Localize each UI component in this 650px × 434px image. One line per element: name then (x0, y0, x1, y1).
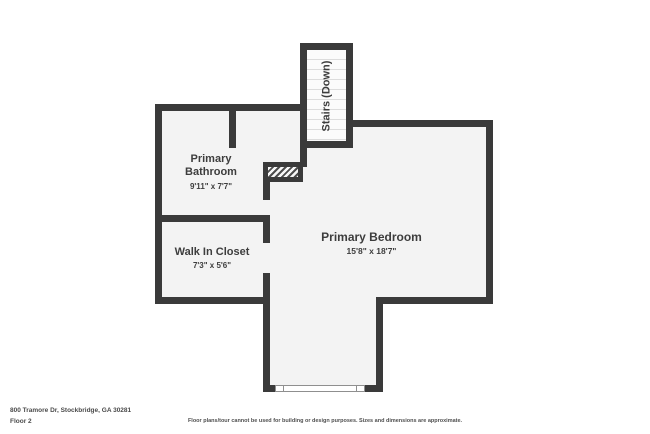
room-dimensions: 9'11" x 7'7" (171, 182, 251, 191)
wall-bedroom-step (376, 297, 383, 392)
wall-closet-right-lower (263, 273, 270, 392)
room-label-primary-bedroom: Primary Bedroom 15'8" x 18'7" (269, 230, 474, 256)
room-label-walk-in-closet: Walk In Closet 7'3" x 5'6" (152, 246, 272, 270)
wall-bathroom-stub (229, 111, 236, 148)
footer-address: 800 Tramore Dr, Stockbridge, GA 30281 (10, 407, 131, 414)
room-name: Walk In Closet (152, 246, 272, 259)
room-dimensions: 15'8" x 18'7" (269, 246, 474, 256)
wall-bathroom-closet-divider (155, 215, 270, 222)
wall-bedroom-top (346, 120, 493, 127)
room-name: Primary Bathroom (171, 153, 251, 179)
wall-closet-bottom (155, 297, 270, 304)
room-label-stairs-down: Stairs (Down) (307, 50, 346, 141)
wall-bathroom-top (155, 104, 307, 111)
room-fill-bedroom-lower (267, 290, 380, 392)
room-label-primary-bathroom: Primary Bathroom 9'11" x 7'7" (171, 153, 251, 191)
wall-stairs-right (346, 43, 353, 148)
wall-bedroom-bottom-right (376, 297, 493, 304)
room-name: Stairs (Down) (321, 60, 333, 131)
window-pane-divider (283, 386, 284, 391)
window-glyph (275, 385, 365, 392)
window-pane-divider (356, 386, 357, 391)
room-dimensions: 7'3" x 5'6" (152, 261, 272, 270)
footer-disclaimer: Floor plans/tour cannot be used for buil… (0, 418, 650, 424)
wall-stairs-bottom (300, 141, 353, 148)
room-name: Primary Bedroom (269, 230, 474, 244)
wall-bathroom-door-jamb (263, 182, 270, 200)
wall-outer-left (155, 104, 162, 304)
floor-plan-canvas: Primary Bathroom 9'11" x 7'7" Walk In Cl… (0, 0, 650, 434)
hatched-area (263, 162, 303, 182)
wall-outer-right (486, 120, 493, 304)
